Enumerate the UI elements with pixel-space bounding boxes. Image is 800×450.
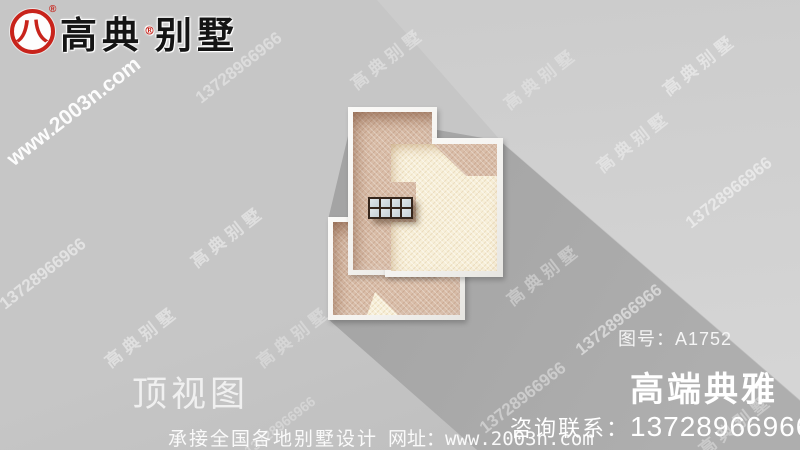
skylight-pane [402,209,411,217]
brand-name: 高典®别墅 [60,5,239,59]
watermark-url: www.2003n.com [3,52,146,171]
drawing-number: 图号：A1752 [618,325,732,351]
skylight-pane [392,199,401,207]
contact-label: 咨询联系： [510,411,630,443]
logo-glyph: 八 [16,19,49,45]
brand-logo: 八 [10,9,55,54]
skylight [368,197,413,219]
brand-name-right: 别墅 [155,13,239,57]
watermark-brand: 高典别墅 [250,298,335,372]
tagline: 高端典雅 [630,362,778,411]
brand-name-left: 高典 [60,13,144,57]
skylight-pane [370,199,379,207]
watermark-brand: 高典别墅 [98,298,183,372]
registered-mark: ® [144,25,155,38]
footer-service: 承接全国各地别墅设计 [168,428,378,450]
contact-phone: 13728966966 [630,411,800,443]
skylight-pane [381,209,390,217]
skylight-pane [402,199,411,207]
registered-mark: ® [49,4,56,15]
render-canvas: www.2003n.com 13728966966 高典别墅 高典别墅 高典别墅… [0,0,800,450]
skylight-pane [392,209,401,217]
watermark-phone: 13728966966 [0,234,90,314]
view-title: 顶视图 [132,366,249,417]
skylight-pane [381,199,390,207]
footer-contact: 咨询联系： 13728966966 [510,411,800,443]
skylight-pane [370,209,379,217]
watermark-brand: 高典别墅 [184,198,269,272]
